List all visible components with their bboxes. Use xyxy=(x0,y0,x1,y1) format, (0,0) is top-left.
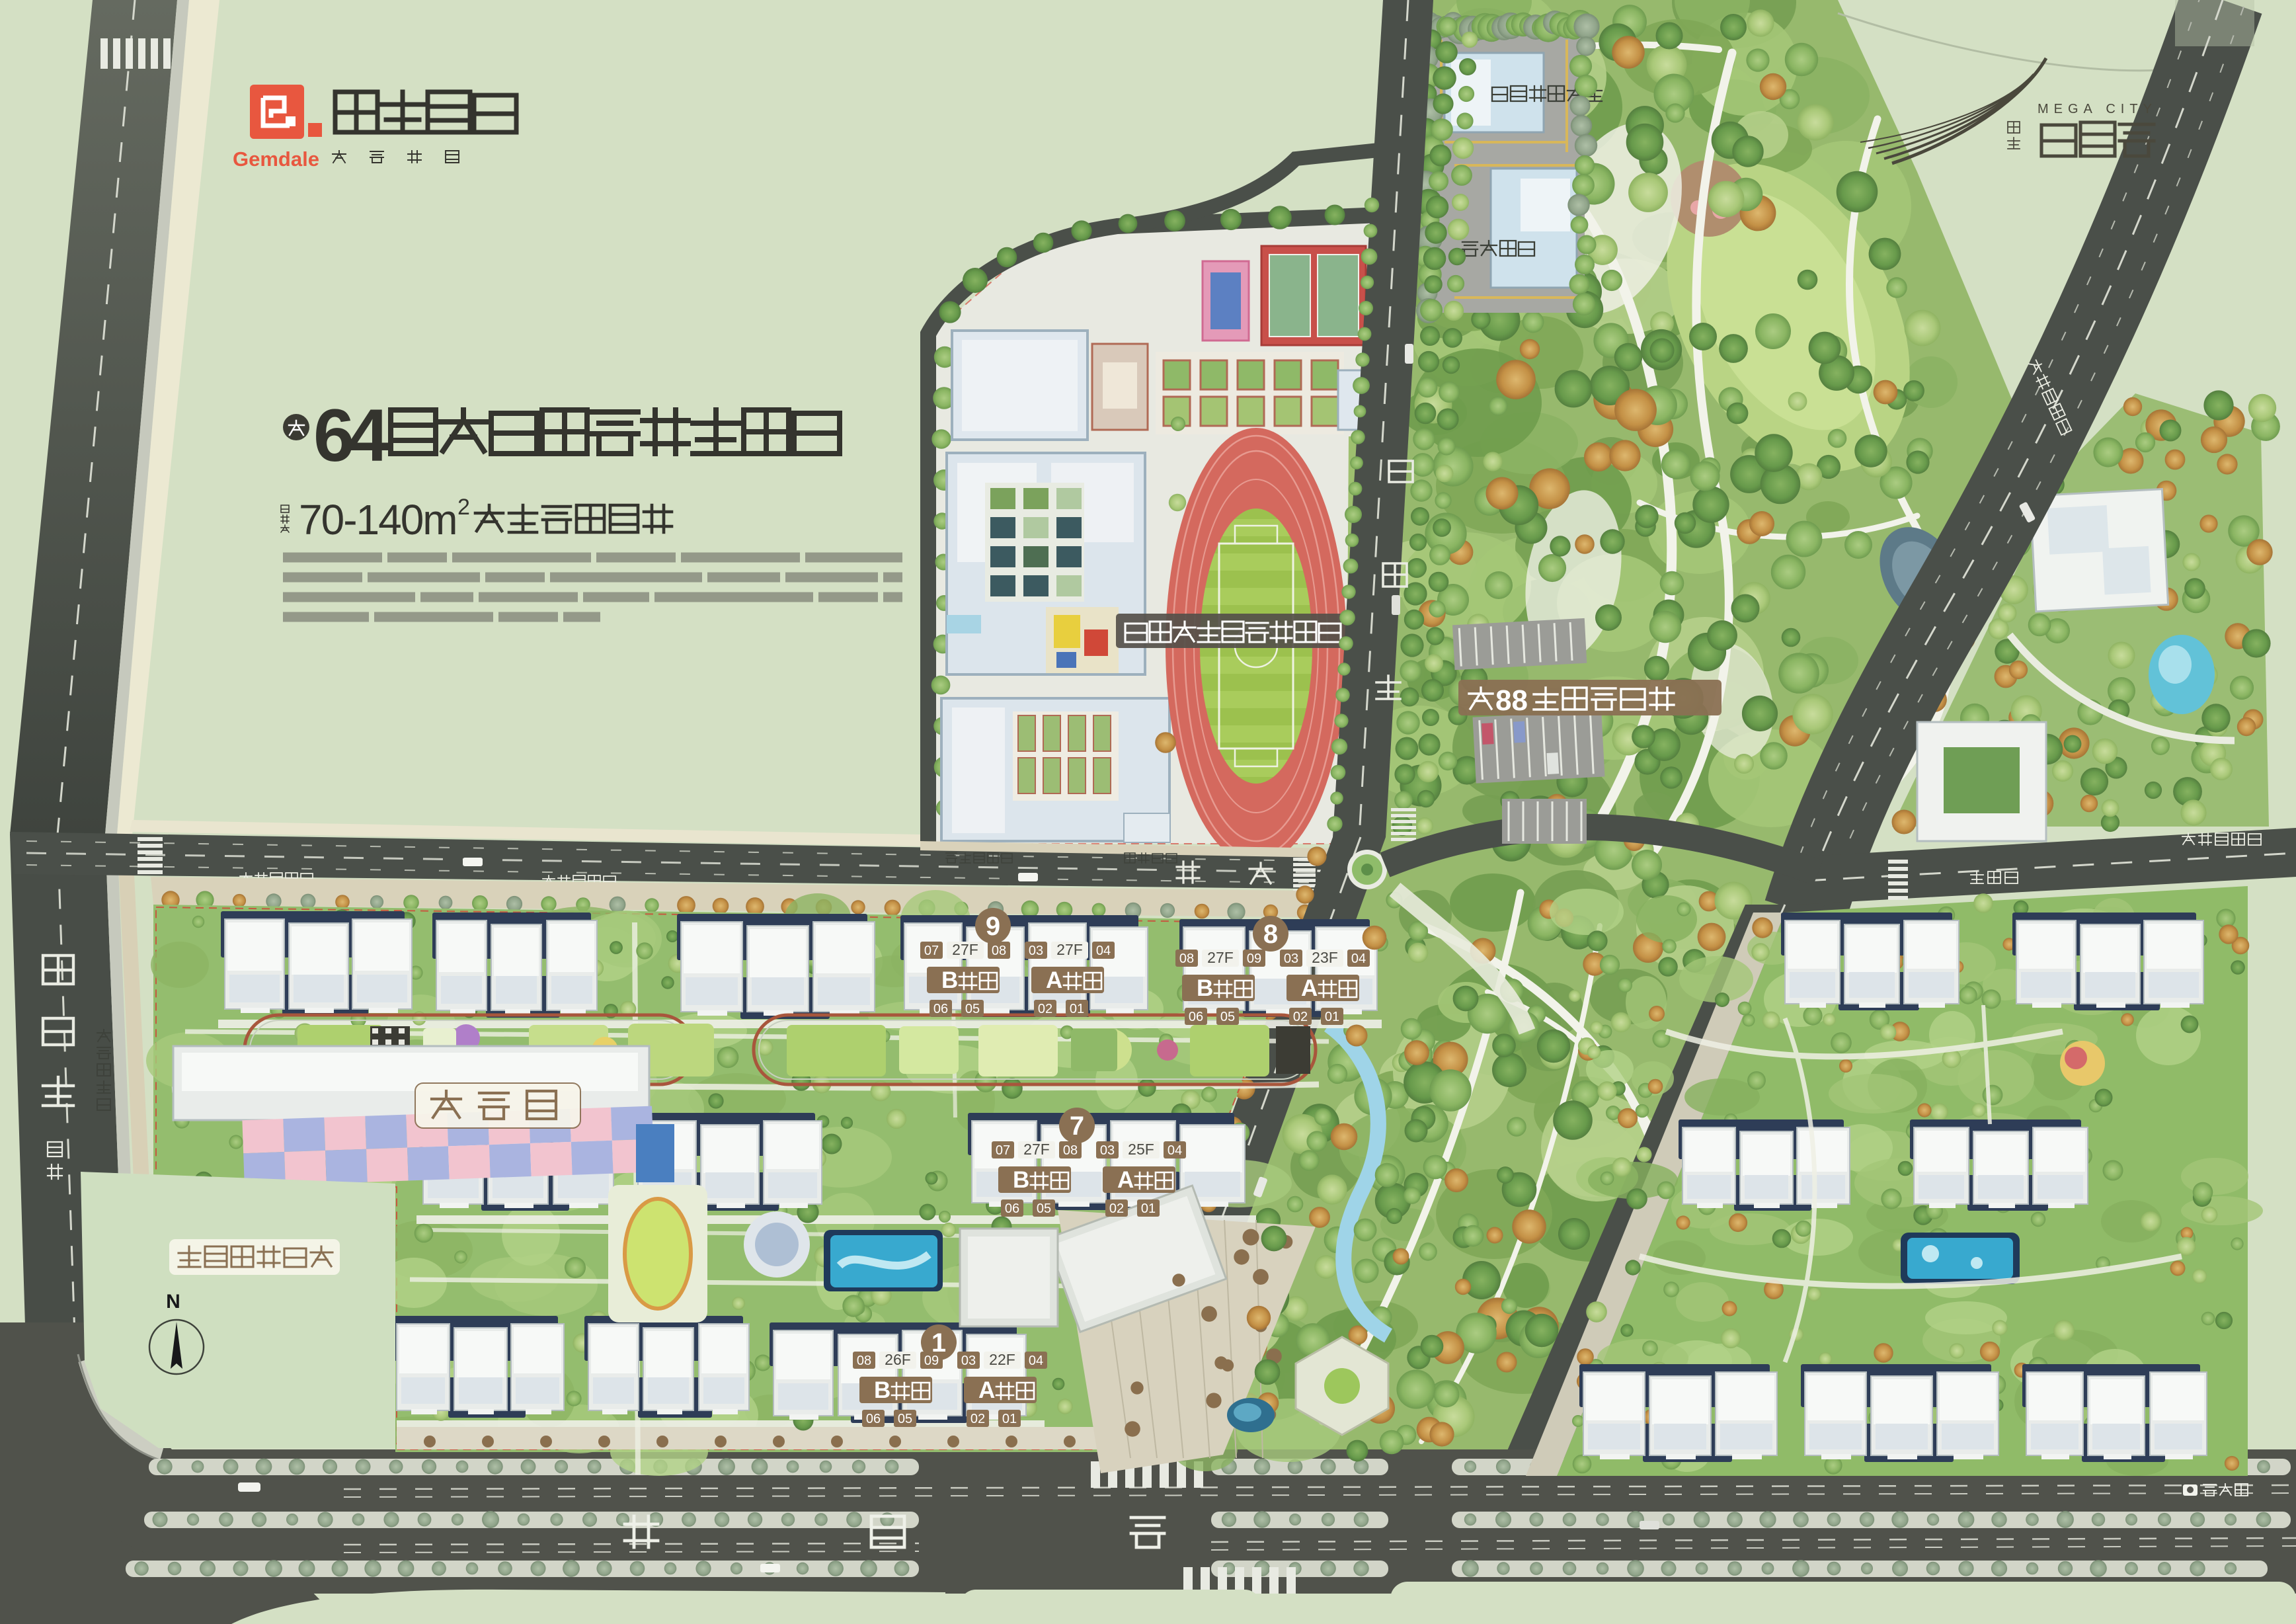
svg-text:06: 06 xyxy=(933,1002,948,1016)
svg-text:02: 02 xyxy=(1038,1002,1052,1016)
svg-text:A: A xyxy=(1046,967,1062,993)
svg-text:07: 07 xyxy=(996,1143,1010,1158)
svg-text:9: 9 xyxy=(986,912,1000,941)
svg-text:22F: 22F xyxy=(989,1351,1015,1368)
svg-text:70-140m: 70-140m xyxy=(299,496,457,544)
svg-text:01: 01 xyxy=(1141,1201,1156,1216)
svg-text:08: 08 xyxy=(992,944,1006,958)
svg-text:05: 05 xyxy=(1220,1010,1235,1024)
svg-text:06: 06 xyxy=(1005,1201,1019,1216)
svg-text:06: 06 xyxy=(1189,1010,1203,1024)
svg-text:04: 04 xyxy=(1096,944,1111,958)
svg-text:26F: 26F xyxy=(885,1351,911,1368)
svg-text:09: 09 xyxy=(1247,952,1261,966)
svg-text:08: 08 xyxy=(1063,1143,1078,1158)
svg-text:B: B xyxy=(1013,1167,1029,1193)
svg-text:7: 7 xyxy=(1070,1112,1084,1141)
svg-text:2: 2 xyxy=(457,495,470,520)
svg-text:05: 05 xyxy=(965,1002,980,1016)
svg-text:8: 8 xyxy=(1263,920,1278,949)
svg-text:A: A xyxy=(978,1377,995,1403)
svg-text:27F: 27F xyxy=(1207,949,1234,966)
svg-text:01: 01 xyxy=(1070,1002,1084,1016)
svg-text:05: 05 xyxy=(898,1412,912,1426)
svg-text:B: B xyxy=(1197,975,1213,1001)
svg-text:03: 03 xyxy=(961,1354,976,1368)
svg-text:B: B xyxy=(941,967,958,993)
svg-text:07: 07 xyxy=(924,944,939,958)
svg-text:08: 08 xyxy=(857,1354,871,1368)
svg-text:25F: 25F xyxy=(1128,1141,1154,1158)
svg-text:27F: 27F xyxy=(1023,1141,1050,1158)
svg-text:B: B xyxy=(874,1377,891,1403)
svg-text:02: 02 xyxy=(1293,1010,1308,1024)
svg-text:27F: 27F xyxy=(952,941,978,958)
svg-text:03: 03 xyxy=(1284,952,1298,966)
svg-text:MEGA CITY: MEGA CITY xyxy=(2038,102,2157,116)
svg-text:02: 02 xyxy=(970,1412,985,1426)
svg-text:Gemdale: Gemdale xyxy=(233,147,319,171)
svg-text:04: 04 xyxy=(1029,1354,1043,1368)
svg-text:06: 06 xyxy=(866,1412,881,1426)
svg-text:N: N xyxy=(166,1291,180,1313)
svg-text:01: 01 xyxy=(1002,1412,1017,1426)
svg-text:05: 05 xyxy=(1037,1201,1051,1216)
svg-text:23F: 23F xyxy=(1312,949,1338,966)
svg-text:01: 01 xyxy=(1325,1010,1339,1024)
svg-text:A: A xyxy=(1301,975,1318,1001)
svg-text:09: 09 xyxy=(924,1354,939,1368)
svg-text:02: 02 xyxy=(1109,1201,1124,1216)
svg-text:08: 08 xyxy=(1179,952,1194,966)
svg-text:A: A xyxy=(1117,1167,1134,1193)
svg-text:03: 03 xyxy=(1029,944,1043,958)
svg-text:03: 03 xyxy=(1100,1143,1115,1158)
svg-text:04: 04 xyxy=(1351,952,1366,966)
svg-text:04: 04 xyxy=(1168,1143,1182,1158)
svg-text:27F: 27F xyxy=(1056,941,1083,958)
svg-text:88: 88 xyxy=(1495,684,1528,717)
svg-text:64: 64 xyxy=(313,394,389,477)
